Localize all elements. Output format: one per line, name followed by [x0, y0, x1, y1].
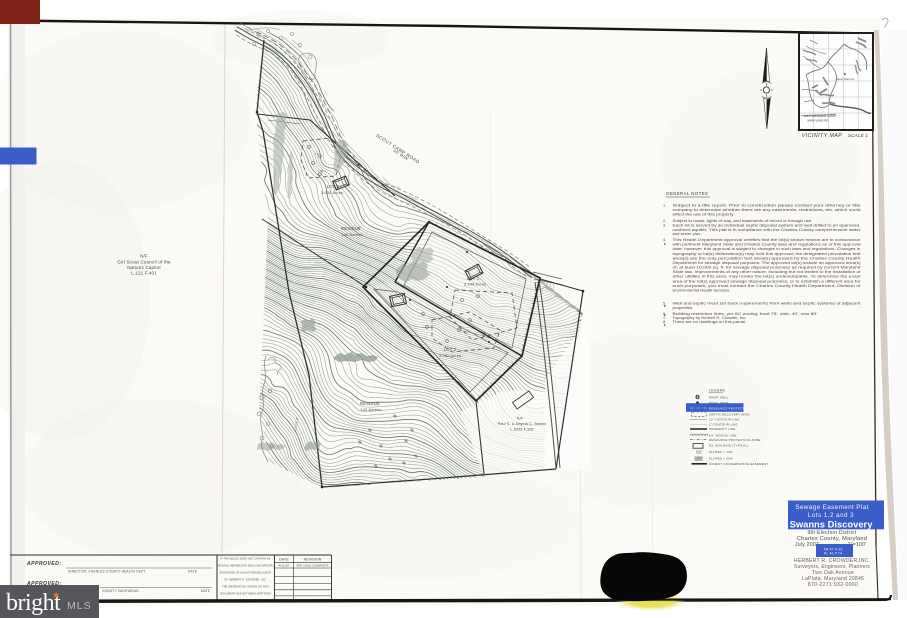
- svg-text:1.: 1.: [663, 204, 667, 208]
- svg-text:Each lot is served by an indiv: Each lot is served by an individual sept…: [673, 224, 861, 228]
- svg-text:July 2007: July 2007: [795, 542, 819, 548]
- svg-text:N/F: N/F: [140, 254, 148, 259]
- svg-text:Subject to a title report. Pr: Subject to a title report. Prior to cons…: [673, 204, 861, 208]
- svg-text:140 Acres±: 140 Acres±: [361, 408, 382, 412]
- svg-text:ORIGINAL IMPRESSION SEAL AND O: ORIGINAL IMPRESSION SEAL AND ORIGINAL: [217, 564, 275, 567]
- svg-text:SEPTIC RECOVERY AREA: SEPTIC RECOVERY AREA: [709, 412, 750, 416]
- svg-text:DATE: DATE: [279, 558, 289, 562]
- svg-text:SLOPES > 15%: SLOPES > 15%: [709, 450, 733, 454]
- svg-text:4.: 4.: [663, 238, 667, 242]
- svg-text:3.082 Acres: 3.082 Acres: [439, 354, 461, 358]
- svg-text:SCALE 1: SCALE 1: [848, 133, 869, 138]
- svg-text:140 Acres±: 140 Acres±: [342, 233, 363, 237]
- svg-text:870-2271 932-0060: 870-2271 932-0060: [808, 582, 858, 588]
- svg-text:MLS: MLS: [67, 600, 92, 612]
- svg-text:RESIDUE: RESIDUE: [360, 401, 380, 406]
- svg-text:VICINITY MAP: VICINITY MAP: [802, 133, 843, 139]
- svg-text:2' CONTOUR LINE: 2' CONTOUR LINE: [709, 422, 738, 426]
- svg-text:properties.: properties.: [673, 306, 694, 310]
- svg-text:SIGNATURE OF AN AUTHORIZED AGE: SIGNATURE OF AN AUTHORIZED AGENT: [220, 571, 272, 574]
- svg-text:Nations Capitol: Nations Capitol: [127, 265, 161, 270]
- svg-text:N/F: N/F: [517, 417, 524, 421]
- svg-text:with pertinent Maryland State: with pertinent Maryland State and Charle…: [673, 242, 861, 246]
- svg-text:LEGEND: LEGEND: [709, 389, 725, 393]
- svg-text:8.: 8.: [663, 320, 667, 324]
- svg-text:area(s) are the only percolati: area(s) are the only percolation test ar…: [673, 256, 861, 260]
- svg-text:Environmental Health Services.: Environmental Health Services.: [673, 288, 731, 292]
- svg-text:LOT 3: LOT 3: [327, 184, 340, 189]
- svg-text:and sewer plan.: and sewer plan.: [673, 232, 702, 236]
- svg-text:Sewage Easement Plat: Sewage Easement Plat: [795, 504, 868, 511]
- svg-text:Well and septic meet set back: Well and septic meet set back requiremen…: [673, 302, 862, 306]
- svg-text:SLOPES > 25%: SLOPES > 25%: [709, 457, 733, 461]
- svg-text:MARYLAND RD: MARYLAND RD: [807, 119, 828, 123]
- svg-text:THE INFORMATION SHOWN ON THIS: THE INFORMATION SHOWN ON THIS: [222, 585, 269, 588]
- svg-text:Camp Merrick: Camp Merrick: [836, 77, 855, 81]
- svg-text:PROPERTY LINE: PROPERTY LINE: [709, 427, 736, 431]
- svg-text:5.: 5.: [663, 302, 667, 306]
- svg-text:3.000 Acres: 3.000 Acres: [321, 191, 343, 195]
- svg-text:DATE: DATE: [201, 589, 210, 593]
- svg-text:TP: TP: [315, 152, 319, 156]
- svg-text:Paul S. & Angela C. Swann: Paul S. & Angela C. Swann: [498, 422, 547, 426]
- svg-text:LOT 1: LOT 1: [467, 276, 480, 281]
- svg-text:DOCUMENT HAS NOT BEEN CERTIFIE: DOCUMENT HAS NOT BEEN CERTIFIED: [220, 592, 271, 595]
- svg-text:LOT 2: LOT 2: [444, 347, 457, 352]
- svg-text:3.349 Acres: 3.349 Acres: [464, 283, 486, 287]
- svg-text:There are no dwellings on this: There are no dwellings on this parcel.: [673, 320, 747, 324]
- svg-text:RESIDUE: RESIDUE: [341, 226, 361, 231]
- svg-text:effect the use of this propert: effect the use of this property.: [673, 213, 735, 217]
- svg-text:Swanns Discovery: Swanns Discovery: [790, 519, 874, 530]
- svg-text:DATE: DATE: [188, 570, 197, 574]
- svg-text:PROP. WELL: PROP. WELL: [709, 395, 729, 399]
- svg-text:PL 46 P.74: PL 46 P.74: [824, 552, 842, 556]
- svg-text:EX. BUILDING (TYPICAL): EX. BUILDING (TYPICAL): [709, 444, 749, 448]
- svg-text:Department for sewage disposal: Department for sewage disposal purposes.…: [673, 261, 862, 265]
- svg-text:3.: 3.: [663, 224, 667, 228]
- svg-text:MATTAWOMAN CAMP: MATTAWOMAN CAMP: [804, 114, 836, 118]
- svg-text:topography or lot(s) delineati: topography or lot(s) delineation(s) may …: [673, 252, 862, 256]
- svg-text:4/11/07: 4/11/07: [278, 563, 289, 567]
- svg-text:date; however, this approval i: date; however, this approval is subject …: [673, 247, 861, 251]
- svg-text:State law. Improvements of an: State law. Improvements of any other nat…: [673, 270, 862, 274]
- svg-text:COUNTY SANITARIAN: COUNTY SANITARIAN: [102, 589, 139, 593]
- svg-text:FOREST CONSERVATION EASEMENT: FOREST CONSERVATION EASEMENT: [709, 462, 768, 466]
- svg-text:IF THE BLOCK DOES NOT CONTAIN: IF THE BLOCK DOES NOT CONTAIN AN: [221, 557, 271, 560]
- svg-text:✱: ✱: [53, 591, 60, 600]
- svg-text:such purposes, you must contac: such purposes, you must contact the Char…: [673, 284, 862, 288]
- svg-text:REVISION: REVISION: [304, 558, 322, 562]
- svg-text:(TB.): (TB.): [318, 169, 325, 173]
- svg-text:Subject to roads, rights of wa: Subject to roads, rights of way, and eas…: [673, 219, 813, 223]
- svg-text:Girl Scout Council of the: Girl Scout Council of the: [117, 260, 171, 265]
- svg-text:L.121 F.401: L.121 F.401: [131, 271, 157, 276]
- svg-text:RESOURCE PROTECTION ZONE: RESOURCE PROTECTION ZONE: [709, 438, 760, 442]
- svg-text:other utilities in this area,: other utilities in this area, may render…: [673, 275, 862, 279]
- svg-text:area of the lot(s) approved se: area of the lot(s) approved sewage dispo…: [673, 279, 862, 283]
- svg-text:APPROVED:: APPROVED:: [26, 561, 61, 567]
- svg-text:10' CONTOUR LINE: 10' CONTOUR LINE: [709, 418, 740, 422]
- svg-text:2.: 2.: [663, 219, 667, 223]
- svg-text:L.5325 F.328: L.5325 F.328: [510, 428, 533, 432]
- svg-text:PER COHD COMMENTS: PER COHD COMMENTS: [297, 564, 329, 567]
- svg-text:of, at least 10,000 sq. ft. fo: of, at least 10,000 sq. ft. for sewage d…: [673, 265, 861, 269]
- svg-text:EX. WOODS LINE: EX. WOODS LINE: [709, 433, 737, 437]
- svg-text:OF HERBERT R. CROWDER, INC.: OF HERBERT R. CROWDER, INC.: [224, 579, 266, 581]
- svg-text:This Health Department approva: This Health Department approval certifie…: [673, 238, 861, 242]
- svg-text:GENERAL NOTES: GENERAL NOTES: [666, 191, 708, 196]
- svg-text:DIRECTOR: CHARLES COUNTY HE: DIRECTOR: CHARLES COUNTY HEALTH DEPT.: [68, 570, 146, 574]
